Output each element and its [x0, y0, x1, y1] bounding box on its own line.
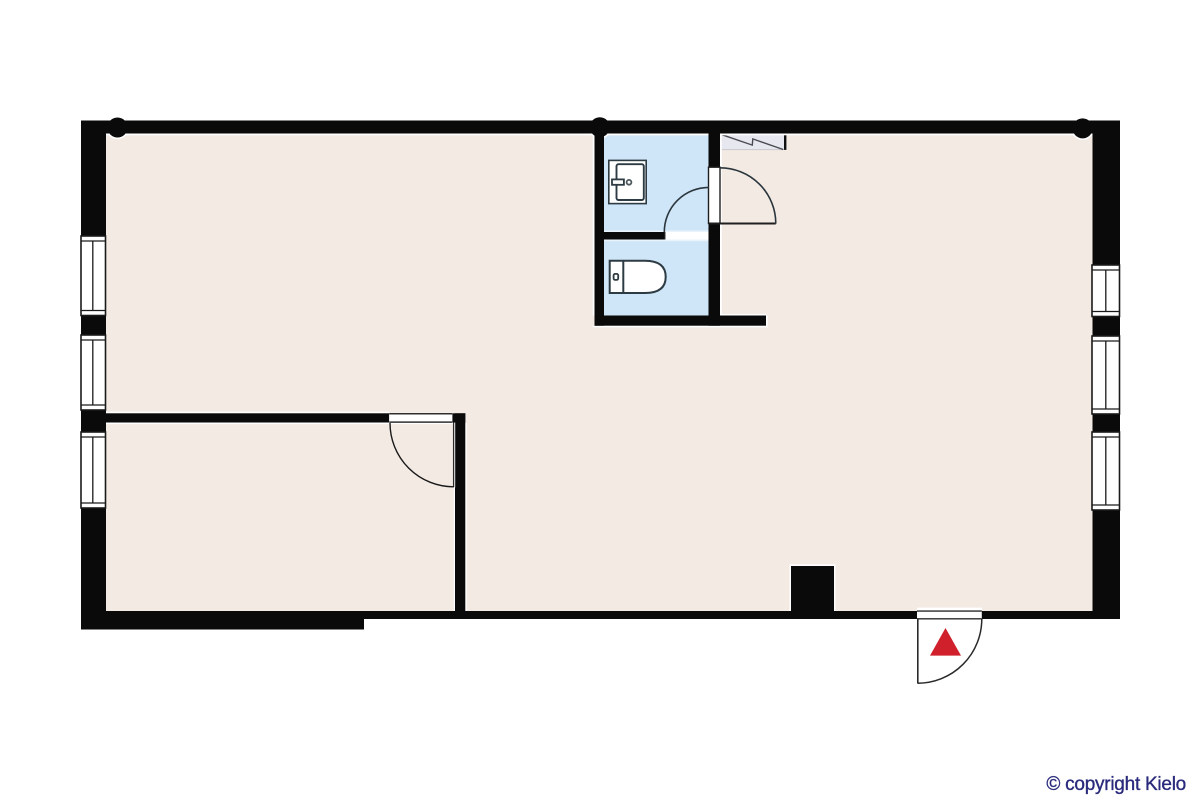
svg-text:© copyright Kielo: © copyright Kielo	[1046, 774, 1186, 795]
